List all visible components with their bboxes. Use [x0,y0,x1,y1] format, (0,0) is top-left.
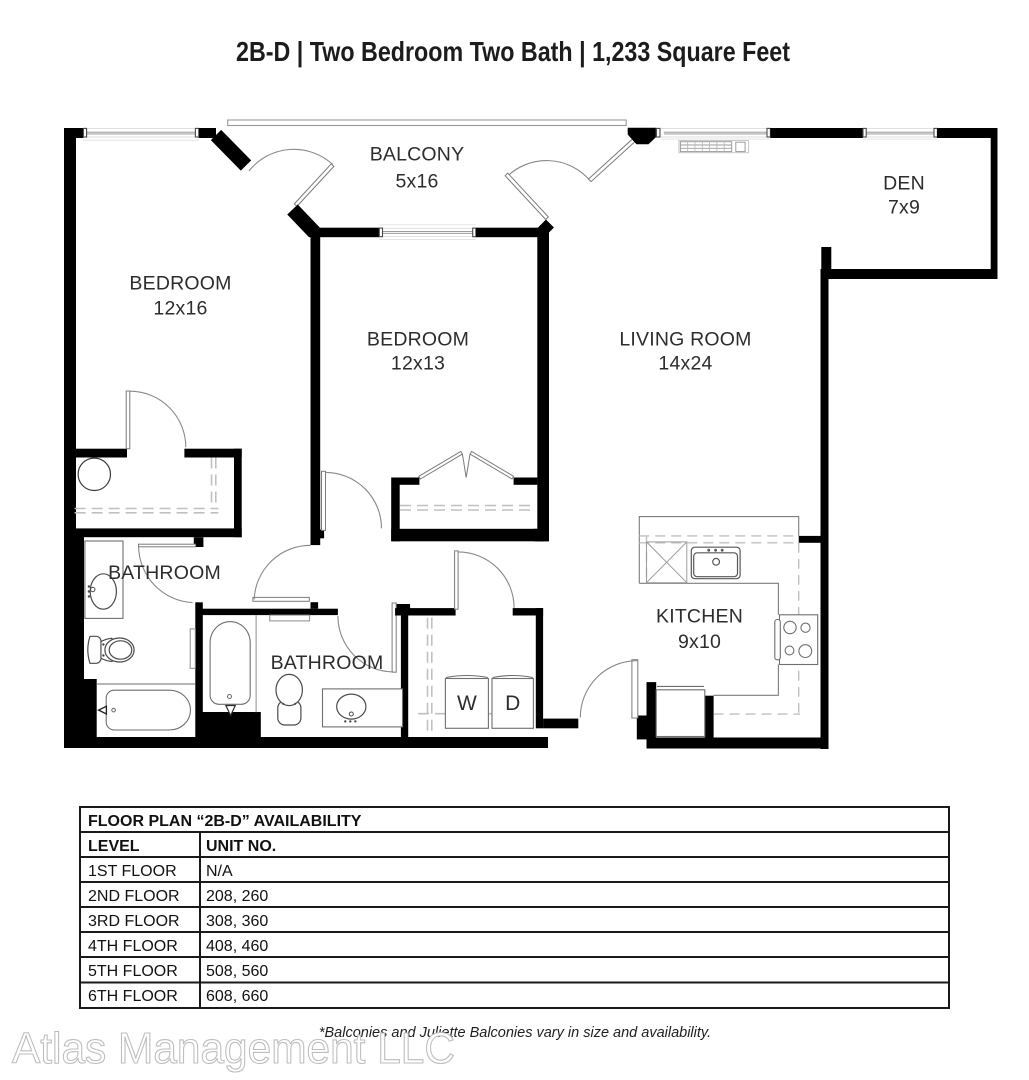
svg-text:9x10: 9x10 [678,631,721,653]
svg-text:N/A: N/A [206,863,233,880]
svg-text:12x13: 12x13 [391,353,445,375]
svg-text:608, 660: 608, 660 [206,988,268,1005]
svg-text:Atlas Management LLC: Atlas Management LLC [12,1024,455,1073]
svg-text:W: W [457,692,477,715]
svg-text:14x24: 14x24 [658,353,712,375]
svg-text:6TH FLOOR: 6TH FLOOR [88,988,178,1005]
svg-text:BEDROOM: BEDROOM [129,273,231,295]
svg-text:1ST FLOOR: 1ST FLOOR [88,863,177,880]
svg-text:LEVEL: LEVEL [88,838,140,855]
svg-text:2B-D | Two Bedroom Two Bath |: 2B-D | Two Bedroom Two Bath | 1,233 Squa… [236,36,790,67]
svg-text:4TH FLOOR: 4TH FLOOR [88,938,178,955]
svg-text:5x16: 5x16 [395,171,438,193]
svg-text:KITCHEN: KITCHEN [656,606,743,628]
svg-text:12x16: 12x16 [153,297,207,319]
svg-text:BATHROOM: BATHROOM [271,652,384,674]
svg-text:508, 560: 508, 560 [206,963,268,980]
svg-text:3RD FLOOR: 3RD FLOOR [88,913,180,930]
svg-text:BEDROOM: BEDROOM [367,328,469,350]
svg-text:408, 460: 408, 460 [206,938,268,955]
svg-text:FLOOR PLAN “2B-D” AVAILABILITY: FLOOR PLAN “2B-D” AVAILABILITY [88,813,362,830]
svg-text:2ND FLOOR: 2ND FLOOR [88,888,180,905]
svg-text:BALCONY: BALCONY [370,144,465,166]
svg-text:BATHROOM: BATHROOM [108,562,221,584]
svg-text:5TH FLOOR: 5TH FLOOR [88,963,178,980]
svg-text:DEN: DEN [883,173,925,195]
svg-text:D: D [505,692,520,715]
svg-text:UNIT NO.: UNIT NO. [206,838,276,855]
svg-text:LIVING ROOM: LIVING ROOM [619,328,751,350]
svg-text:7x9: 7x9 [888,196,920,218]
svg-text:308, 360: 308, 360 [206,913,268,930]
svg-text:208, 260: 208, 260 [206,888,268,905]
